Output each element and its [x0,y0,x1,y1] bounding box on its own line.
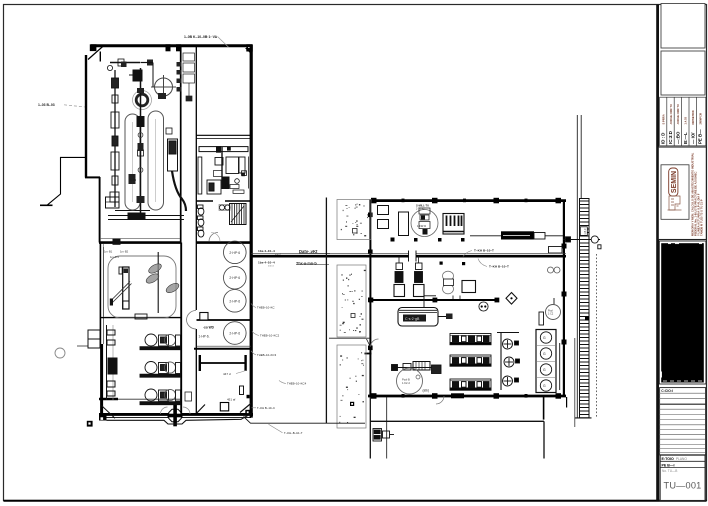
svg-text:THEB–10–KC3: THEB–10–KC3 [257,353,277,357]
svg-text:2·T1·K2: 2·T1·K2 [416,208,425,211]
svg-text:1–03 B–03: 1–03 B–03 [38,103,55,107]
svg-text:T–KH B–10–T: T–KH B–10–T [474,248,494,252]
svg-text:2·HP·6: 2·HP·6 [229,276,240,280]
svg-text:1bx·4–10–4: 1bx·4–10–4 [258,249,275,253]
svg-text:mm·4: mm·4 [275,254,281,256]
svg-text:1·C2: 1·C2 [548,313,554,316]
svg-text:G: G [543,336,546,340]
svg-text:1m·B2: 1m·B2 [120,250,129,254]
svg-text:TANDB M TU25 T3 S TU 21 P: TANDB M TU25 T3 S TU 21 P [699,199,703,236]
svg-text:S PRRA: S PRRA [661,114,665,124]
svg-text:THEB–10–KC: THEB–10–KC [257,306,275,310]
svg-text:PLANO: PLANO [676,457,687,461]
svg-text:NRWETRIK: NRWETRIK [691,110,695,124]
svg-text:1–0B K–10–0B·1··VA: 1–0B K–10–0B·1··VA [184,35,218,39]
svg-text:·so WD: ·so WD [203,326,215,330]
svg-text:T–KH B–10–T: T–KH B–10–T [489,264,509,268]
svg-text:2·HP·6: 2·HP·6 [229,332,240,336]
svg-text:—:BO: —:BO [676,131,681,144]
svg-text:SEMIN: SEMIN [671,171,678,193]
svg-text:2MNPCM: 2MNPCM [698,112,702,124]
svg-text:PE B—I: PE B—I [662,463,675,467]
svg-text:IC:3:D: IC:3:D [668,131,673,144]
svg-text:mm·4: mm·4 [268,265,274,267]
svg-text:T–KH–B–10–T: T–KH–B–10–T [284,431,303,435]
svg-text:— IO/: — IO/ [690,132,695,144]
svg-text:2·HP·6: 2·HP·6 [229,299,240,303]
svg-text:THEB–10–KC4: THEB–10–KC4 [287,382,307,386]
svg-text:C·s·2·gB: C·s·2·gB [405,317,420,321]
svg-text:4–0B: 4–0B [130,178,136,182]
svg-text:JORGE ORR TU: JORGE ORR TU [669,104,673,125]
svg-text:T–KH B–10–C: T–KH B–10–C [257,406,275,410]
svg-text:E:TOIO: E:TOIO [662,457,675,461]
svg-text:G: G [543,368,546,372]
svg-text:447 d: 447 d [223,372,231,376]
svg-text:2·HP·6: 2·HP·6 [229,251,240,255]
svg-text:G: G [543,384,546,388]
svg-text:1m·0·4: 1m·0·4 [110,255,119,259]
svg-text:G: G [543,352,546,356]
svg-text:ID : D: ID : D [661,133,666,144]
svg-text:451 af: 451 af [227,398,236,402]
svg-text:1·FW·D: 1·FW·D [417,224,426,228]
svg-text:TU—001: TU—001 [664,481,702,491]
svg-text:1.4.03: 1.4.03 [684,117,688,125]
svg-text:C:CIO:I: C:CIO:I [661,389,673,393]
svg-text:B:—L: B:—L [683,132,688,144]
svg-text:THEB–10–KC2: THEB–10–KC2 [260,334,280,338]
svg-text:JORGE ORR TU: JORGE ORR TU [676,104,680,125]
svg-text:(atk): (atk) [423,389,429,393]
svg-text:1·K2·d: 1·K2·d [402,381,410,385]
svg-text:Pool·B: Pool·B [402,378,410,382]
svg-text:No. TU—B: No. TU—B [662,469,677,473]
svg-text:PE B—: PE B— [698,129,703,144]
svg-text:1·HP·6.: 1·HP·6. [199,335,210,339]
svg-text:1bx·4–10–4: 1bx·4–10–4 [258,260,275,264]
svg-text:1m·B1: 1m·B1 [104,250,113,254]
svg-text:1·B·C: 1·B·C [584,228,587,235]
